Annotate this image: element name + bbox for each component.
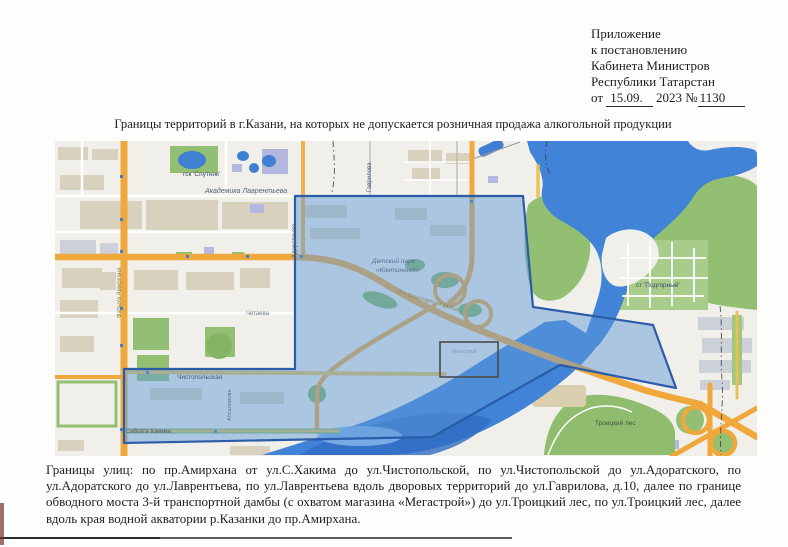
header-line: Кабинета Министров (591, 58, 771, 74)
label-fatykha-amirkhana: Фатыха Амирхана (117, 267, 123, 318)
label-chistopolskaya: Чистопольская (177, 374, 223, 381)
decree-number: 1130 (698, 90, 746, 107)
label-gavrilova: Гаврилова (367, 162, 373, 192)
boundary-description: Границы улиц: по пр.Амирхана от ул.С.Хак… (46, 462, 741, 527)
label-detsky-park: Детский парк (371, 257, 416, 265)
header-line: Республики Татарстан (591, 74, 771, 90)
label-sibgata-khakima: Сибгата Хакима (126, 429, 172, 435)
label-adoratskogo: Адоратского (292, 223, 298, 258)
date-middle: 2023 № (653, 90, 698, 105)
header-line: к постановлению (591, 42, 771, 58)
date-value: 15.09. (606, 90, 653, 107)
label-megastroy: Мегастрой (452, 348, 477, 355)
label-gsk-sputnik: гск 'Спутник' (183, 171, 220, 178)
label-akademika-lavrentieva: Академика Лаврентьева (204, 187, 287, 195)
date-prefix: от (591, 90, 606, 105)
document-page: Приложение к постановлению Кабинета Мини… (0, 0, 788, 547)
page-bottom-line-dark (0, 537, 160, 539)
header-line: Приложение (591, 26, 771, 42)
header-date-line: от 15.09. 2023 №1130 (591, 90, 771, 106)
page-title: Границы территорий в г.Казани, на которы… (40, 117, 746, 132)
label-st-podgorny: ст 'Подгорный' (636, 281, 680, 289)
label-absalyamova: Абсалямова (227, 389, 233, 421)
city-map: гск 'Спутник' Академика Лаврентьева Чета… (55, 141, 757, 456)
label-chetaeva: Четаева (246, 311, 270, 317)
header-requisites: Приложение к постановлению Кабинета Мини… (591, 26, 771, 106)
label-detsky-park-kontinent: «Континент» (376, 267, 420, 274)
scan-edge-mark (0, 503, 4, 545)
map-svg: гск 'Спутник' Академика Лаврентьева Чета… (55, 141, 757, 456)
label-troitsky-les: Троицкий лес (595, 419, 637, 427)
